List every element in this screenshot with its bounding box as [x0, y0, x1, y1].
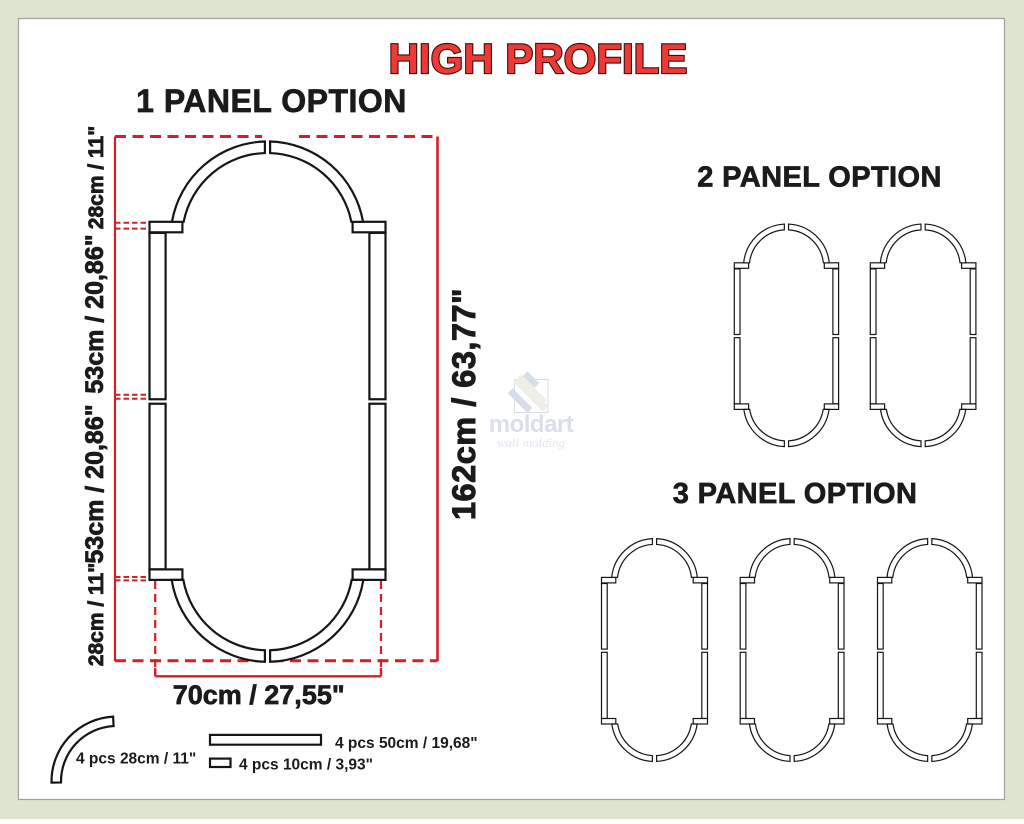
- svg-text:HIGH PROFILE: HIGH PROFILE: [389, 35, 688, 82]
- svg-text:28cm / 11": 28cm / 11": [85, 126, 108, 229]
- svg-text:wall molding: wall molding: [497, 435, 566, 450]
- svg-text:moldart: moldart: [489, 411, 574, 438]
- svg-text:53cm / 20,86": 53cm / 20,86": [81, 234, 109, 393]
- svg-text:4 pcs 10cm / 3,93": 4 pcs 10cm / 3,93": [239, 757, 373, 774]
- svg-text:28cm / 11": 28cm / 11": [85, 563, 108, 666]
- svg-text:3 PANEL OPTION: 3 PANEL OPTION: [673, 478, 918, 510]
- svg-text:70cm / 27,55": 70cm / 27,55": [173, 680, 345, 710]
- svg-text:4 pcs 50cm / 19,68": 4 pcs 50cm / 19,68": [335, 735, 478, 752]
- svg-text:162cm / 63,77": 162cm / 63,77": [446, 288, 482, 520]
- svg-text:4 pcs 28cm / 11": 4 pcs 28cm / 11": [76, 751, 196, 768]
- svg-text:2 PANEL OPTION: 2 PANEL OPTION: [697, 162, 942, 194]
- svg-text:1 PANEL OPTION: 1 PANEL OPTION: [136, 83, 407, 119]
- svg-text:53cm / 20,86": 53cm / 20,86": [81, 404, 109, 563]
